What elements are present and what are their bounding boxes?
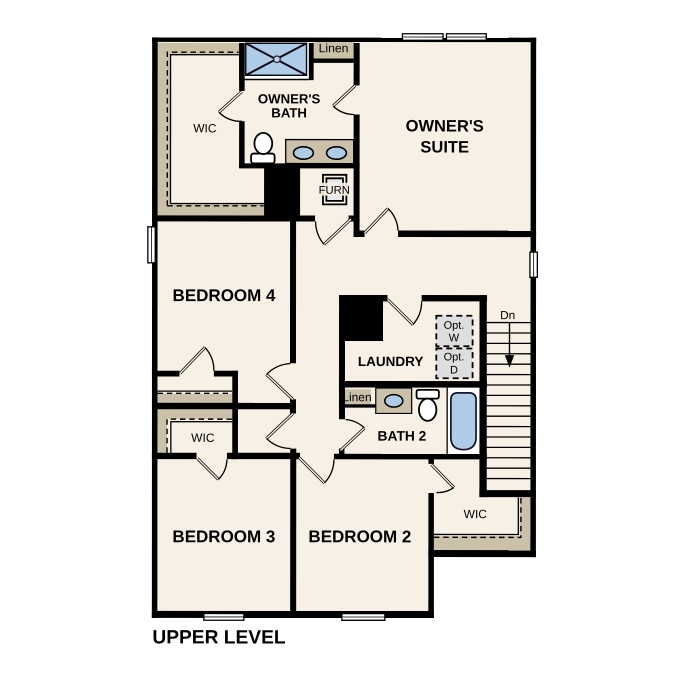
svg-text:W: W: [449, 332, 460, 344]
svg-text:Linen: Linen: [319, 41, 349, 55]
svg-text:BEDROOM 3: BEDROOM 3: [172, 527, 275, 546]
svg-text:OWNER'S: OWNER'S: [406, 117, 484, 135]
svg-text:D: D: [450, 364, 458, 376]
svg-text:BATH: BATH: [271, 105, 307, 120]
svg-text:Dn: Dn: [500, 308, 515, 322]
svg-text:FURN: FURN: [319, 185, 350, 197]
svg-text:LAUNDRY: LAUNDRY: [358, 354, 424, 369]
svg-text:WIC: WIC: [464, 507, 488, 521]
svg-text:WIC: WIC: [191, 431, 215, 445]
svg-text:WIC: WIC: [193, 121, 217, 135]
svg-text:Opt.: Opt.: [444, 320, 465, 332]
svg-text:BEDROOM 2: BEDROOM 2: [308, 527, 411, 546]
svg-text:UPPER LEVEL: UPPER LEVEL: [152, 627, 286, 648]
svg-text:BEDROOM 4: BEDROOM 4: [173, 286, 277, 305]
svg-text:OWNER'S: OWNER'S: [258, 91, 321, 106]
svg-text:BATH 2: BATH 2: [378, 429, 427, 444]
svg-text:Linen: Linen: [342, 390, 371, 404]
svg-text:Opt.: Opt.: [444, 351, 465, 363]
svg-text:SUITE: SUITE: [420, 139, 469, 157]
